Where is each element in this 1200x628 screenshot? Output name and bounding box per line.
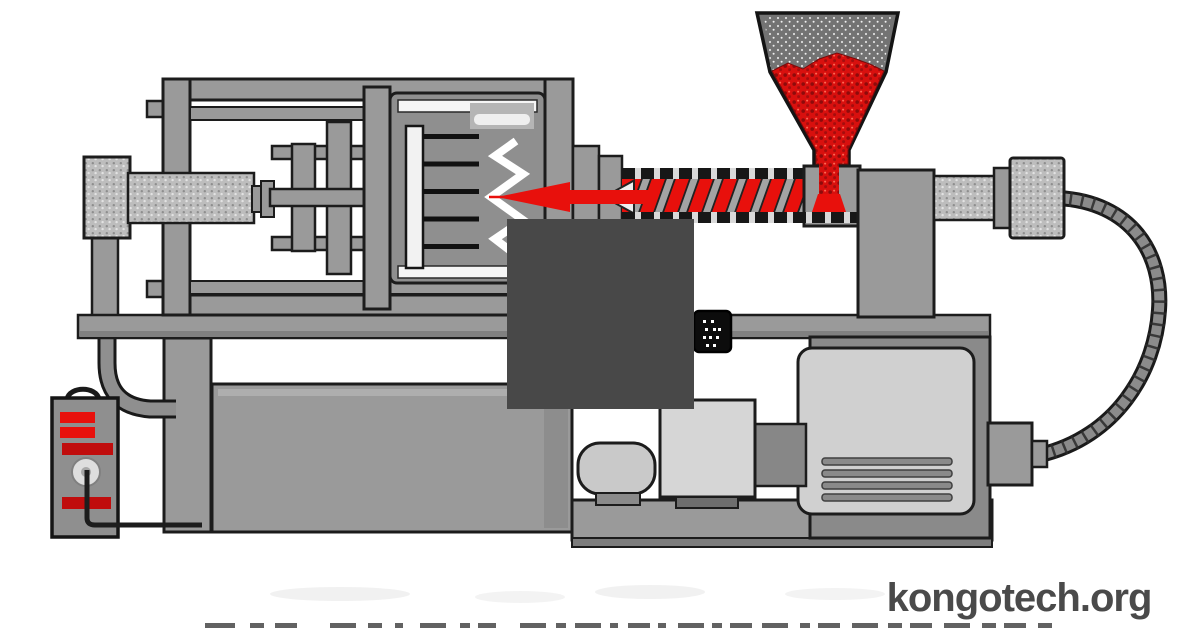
motor-housing xyxy=(798,337,1047,538)
hopper xyxy=(757,13,898,167)
injection-cylinder xyxy=(934,158,1064,238)
moving-platen xyxy=(364,87,390,309)
toggle-mechanism xyxy=(252,122,372,274)
panel-indicator-3 xyxy=(62,443,113,455)
watermark-text: kongotech.org xyxy=(887,576,1152,620)
control-keypad xyxy=(694,311,731,352)
injection-carriage xyxy=(858,170,934,317)
redacted-overlay xyxy=(507,219,694,409)
cylinder-support-leg xyxy=(92,236,118,320)
hose-port xyxy=(988,423,1032,485)
panel-indicator-1 xyxy=(60,412,95,423)
floor-smudges xyxy=(270,585,885,603)
machine-illustration: kongotech.org xyxy=(0,0,1200,628)
pump-box xyxy=(660,400,755,508)
left-support-leg xyxy=(164,338,211,532)
injection-molding-machine-diagram: kongotech.org xyxy=(0,0,1200,628)
panel-indicator-2 xyxy=(60,427,95,438)
cropped-bottom-marks xyxy=(205,623,1052,628)
pump-coupling xyxy=(754,424,806,486)
ejector-plate xyxy=(406,126,423,268)
accumulator xyxy=(578,443,655,505)
hose-port-stub xyxy=(1032,441,1047,467)
